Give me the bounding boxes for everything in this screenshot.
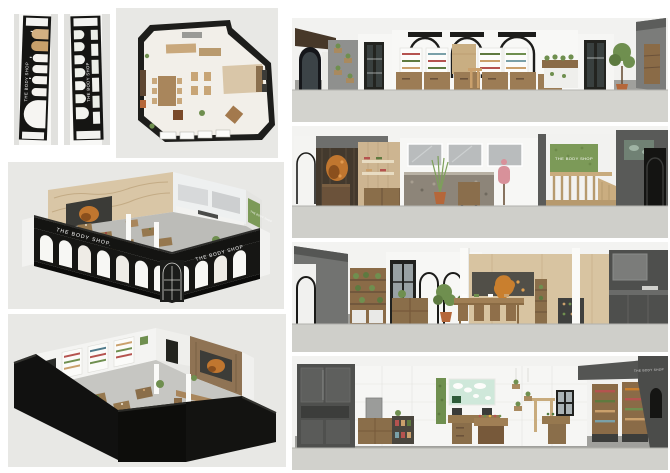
strip-a-facade: THE BODY SHOP [19,16,51,141]
sec4-arch-silhouette [650,388,662,418]
sec4-display-table [474,415,508,444]
sec4-plant-strip [436,378,446,424]
sec1-center-wall [392,30,578,90]
sec2-railing [550,172,612,176]
section-elevation-4: THE BODY SHOP [292,356,668,470]
sec2-mirror [448,144,482,166]
sec3-plant-shelf [350,268,386,324]
section-elevation-2: THE BODY SHOP [292,126,668,238]
floor-plan [116,8,278,158]
sec3-bottle-counter [558,298,584,325]
sec3-center-zone [454,248,609,326]
axon1-column [126,214,131,242]
sec4-monitor [482,408,492,415]
sec4-left-cabinets [297,364,355,448]
axon2-back-door [166,339,178,364]
store-design-presentation-board: THE BODY SHOP [0,0,670,473]
axon2-column [154,364,159,394]
sec2-plant-wall-brand-text: THE BODY SHOP [555,156,593,161]
sec3-ground [292,324,668,352]
sec2-cart [458,182,480,206]
sec3-column [572,248,580,326]
sec2-ground [292,206,668,238]
strip-b-brand-text: THE BODY SHOP [85,62,91,102]
section-elevation-3 [292,242,668,352]
strip-b-facade: THE BODY SHOP [70,16,103,141]
axon1-corner-entrance [160,260,184,302]
section-elevation-1 [292,18,668,122]
sec3-left-zone [294,246,482,330]
sec3-tall-shelf [535,279,547,325]
isometric-cutaway-storefront: THE BODY SHOP [8,162,284,309]
facade-elevation-strip-b: THE BODY SHOP [64,14,110,145]
sec2-center-zone [400,138,548,209]
sec3-right-zone [609,250,668,326]
isometric-cutaway-rear [8,314,286,467]
sec3-sink [642,286,658,290]
sec4-locker [366,398,382,420]
facade-elevation-strip-a: THE BODY SHOP [14,14,58,145]
sec2-mirror [408,144,442,166]
sec4-monitor [452,408,462,415]
sec2-right-zone: THE BODY SHOP [538,130,668,207]
sec1-ground [292,90,668,122]
sec2-stone-counter [404,174,494,206]
sec4-ground [292,448,668,470]
